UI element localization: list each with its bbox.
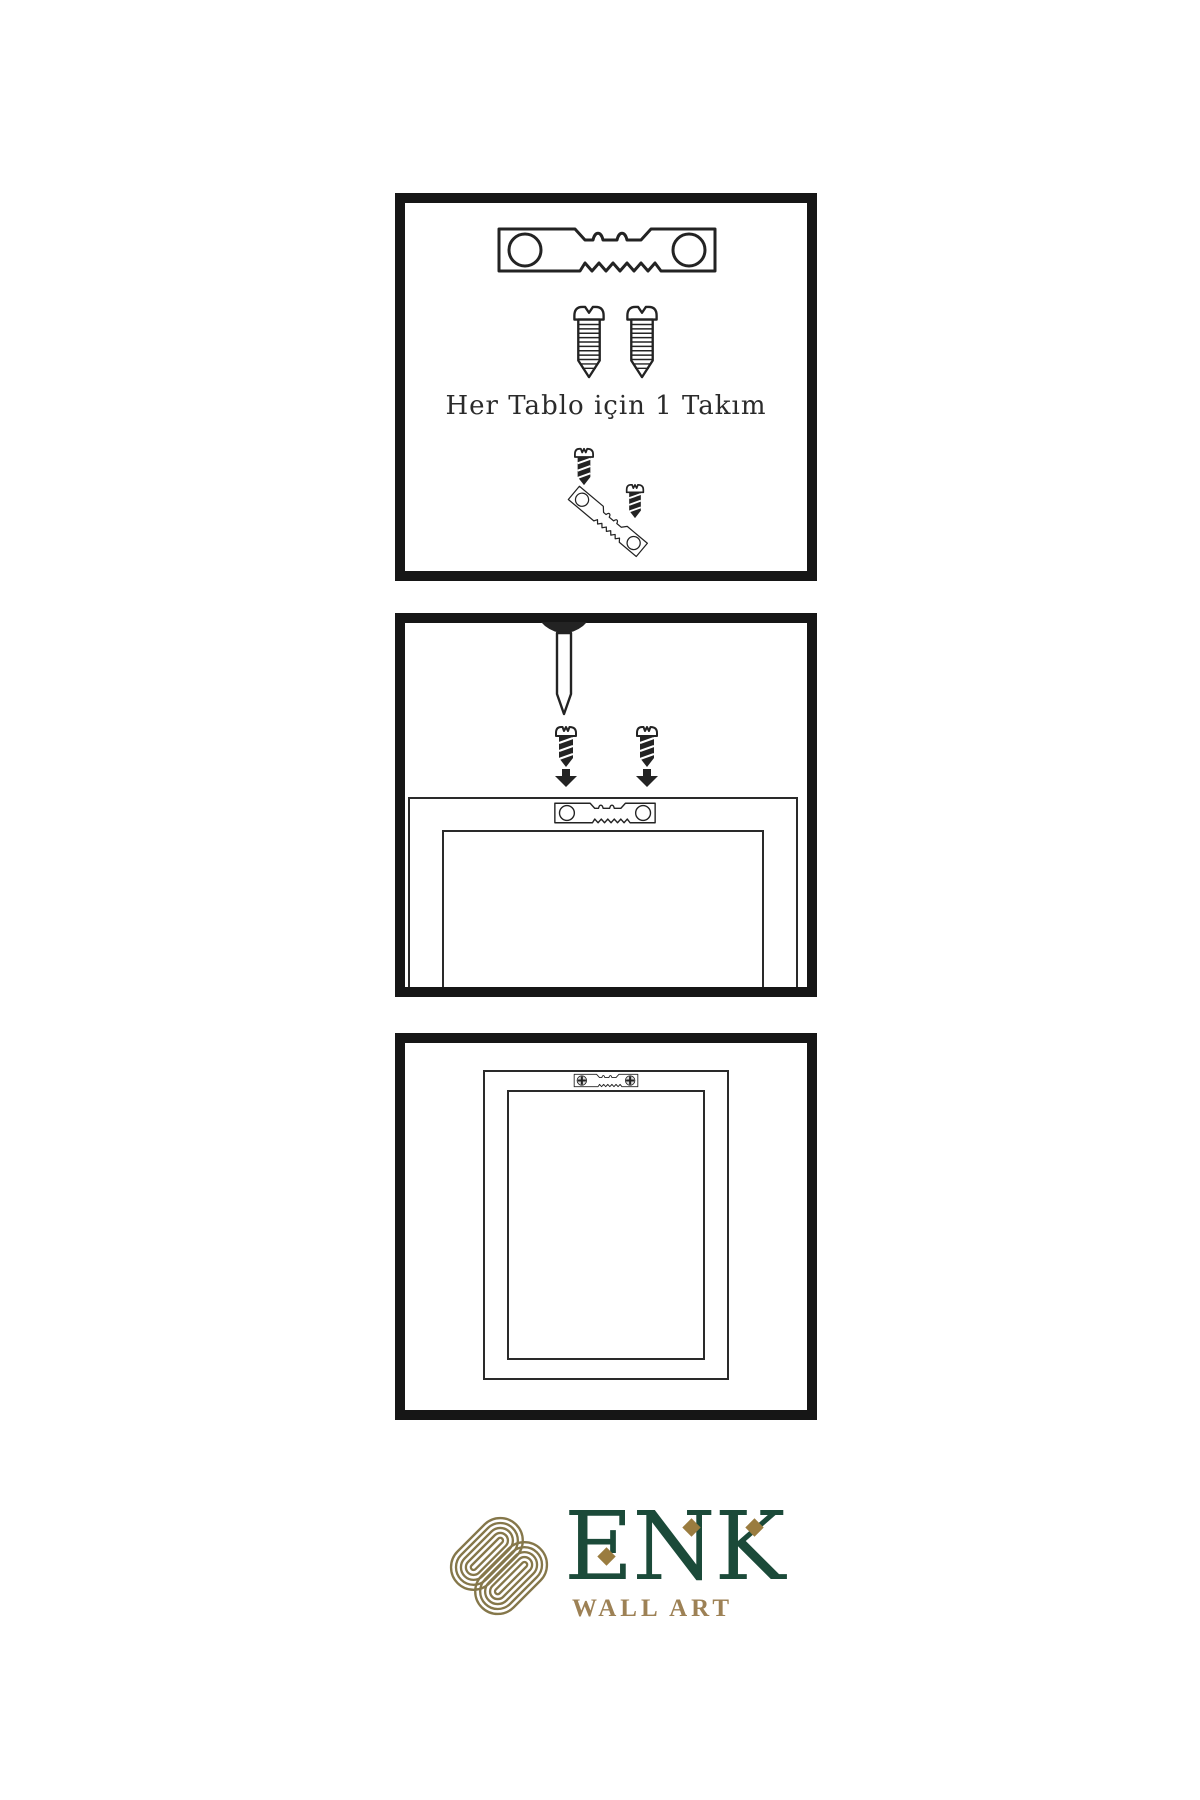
mounted-sawtooth-hanger-icon	[573, 1072, 639, 1089]
panel-mounted-frame	[395, 1033, 817, 1420]
screw-icon	[635, 725, 659, 769]
screw-icon	[554, 725, 578, 769]
kit-caption: Her Tablo için 1 Takım	[405, 391, 807, 421]
down-arrow-icon	[554, 769, 578, 787]
interlocking-knot-icon	[440, 1500, 558, 1632]
screw-icon	[623, 304, 661, 380]
frame-back-inner-outline	[442, 830, 764, 987]
angled-sawtooth-hanger-icon	[563, 447, 681, 565]
brand-name: ENK	[564, 1497, 784, 1597]
framed-picture-inner-outline	[507, 1090, 705, 1360]
sawtooth-hanger-icon	[495, 222, 719, 278]
down-arrow-icon	[635, 769, 659, 787]
screw-icon	[570, 304, 608, 380]
sawtooth-hanger-icon	[552, 800, 658, 826]
panel-attach-hanger	[395, 613, 817, 997]
wall-nail-icon	[540, 622, 588, 718]
panel-kit-contents: Her Tablo için 1 Takım	[395, 193, 817, 581]
brand-tagline: WALL ART	[572, 1595, 733, 1623]
